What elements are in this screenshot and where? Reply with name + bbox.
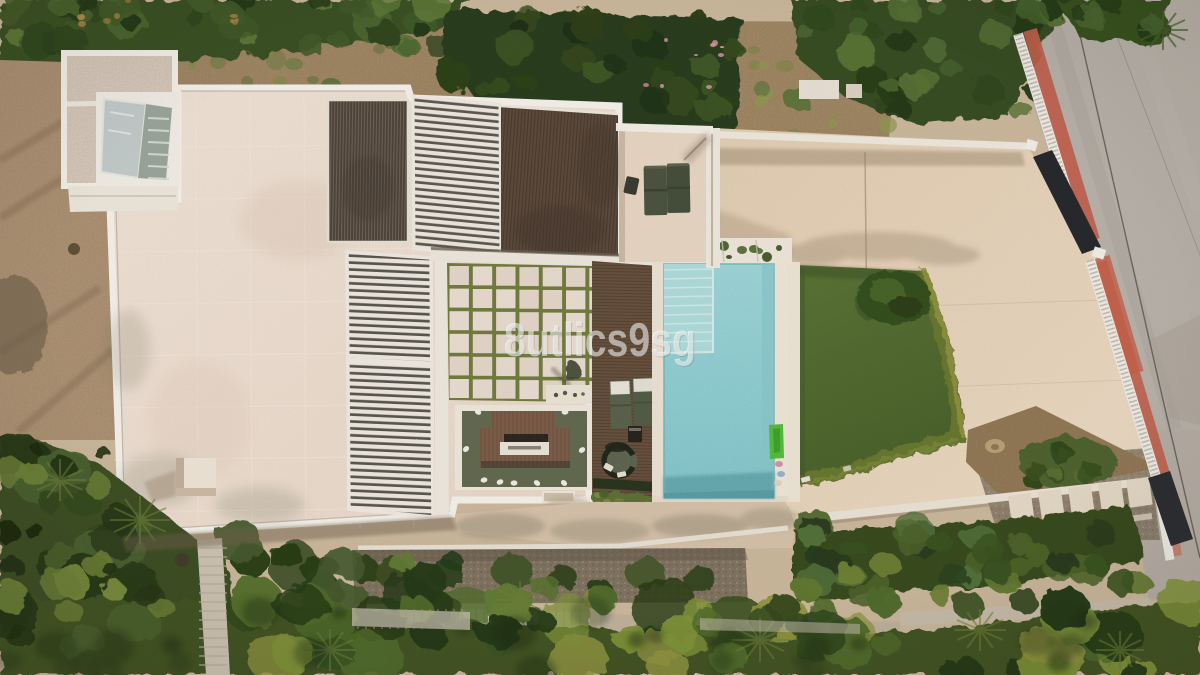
svg-text:8utlics9sg: 8utlics9sg <box>504 313 696 366</box>
